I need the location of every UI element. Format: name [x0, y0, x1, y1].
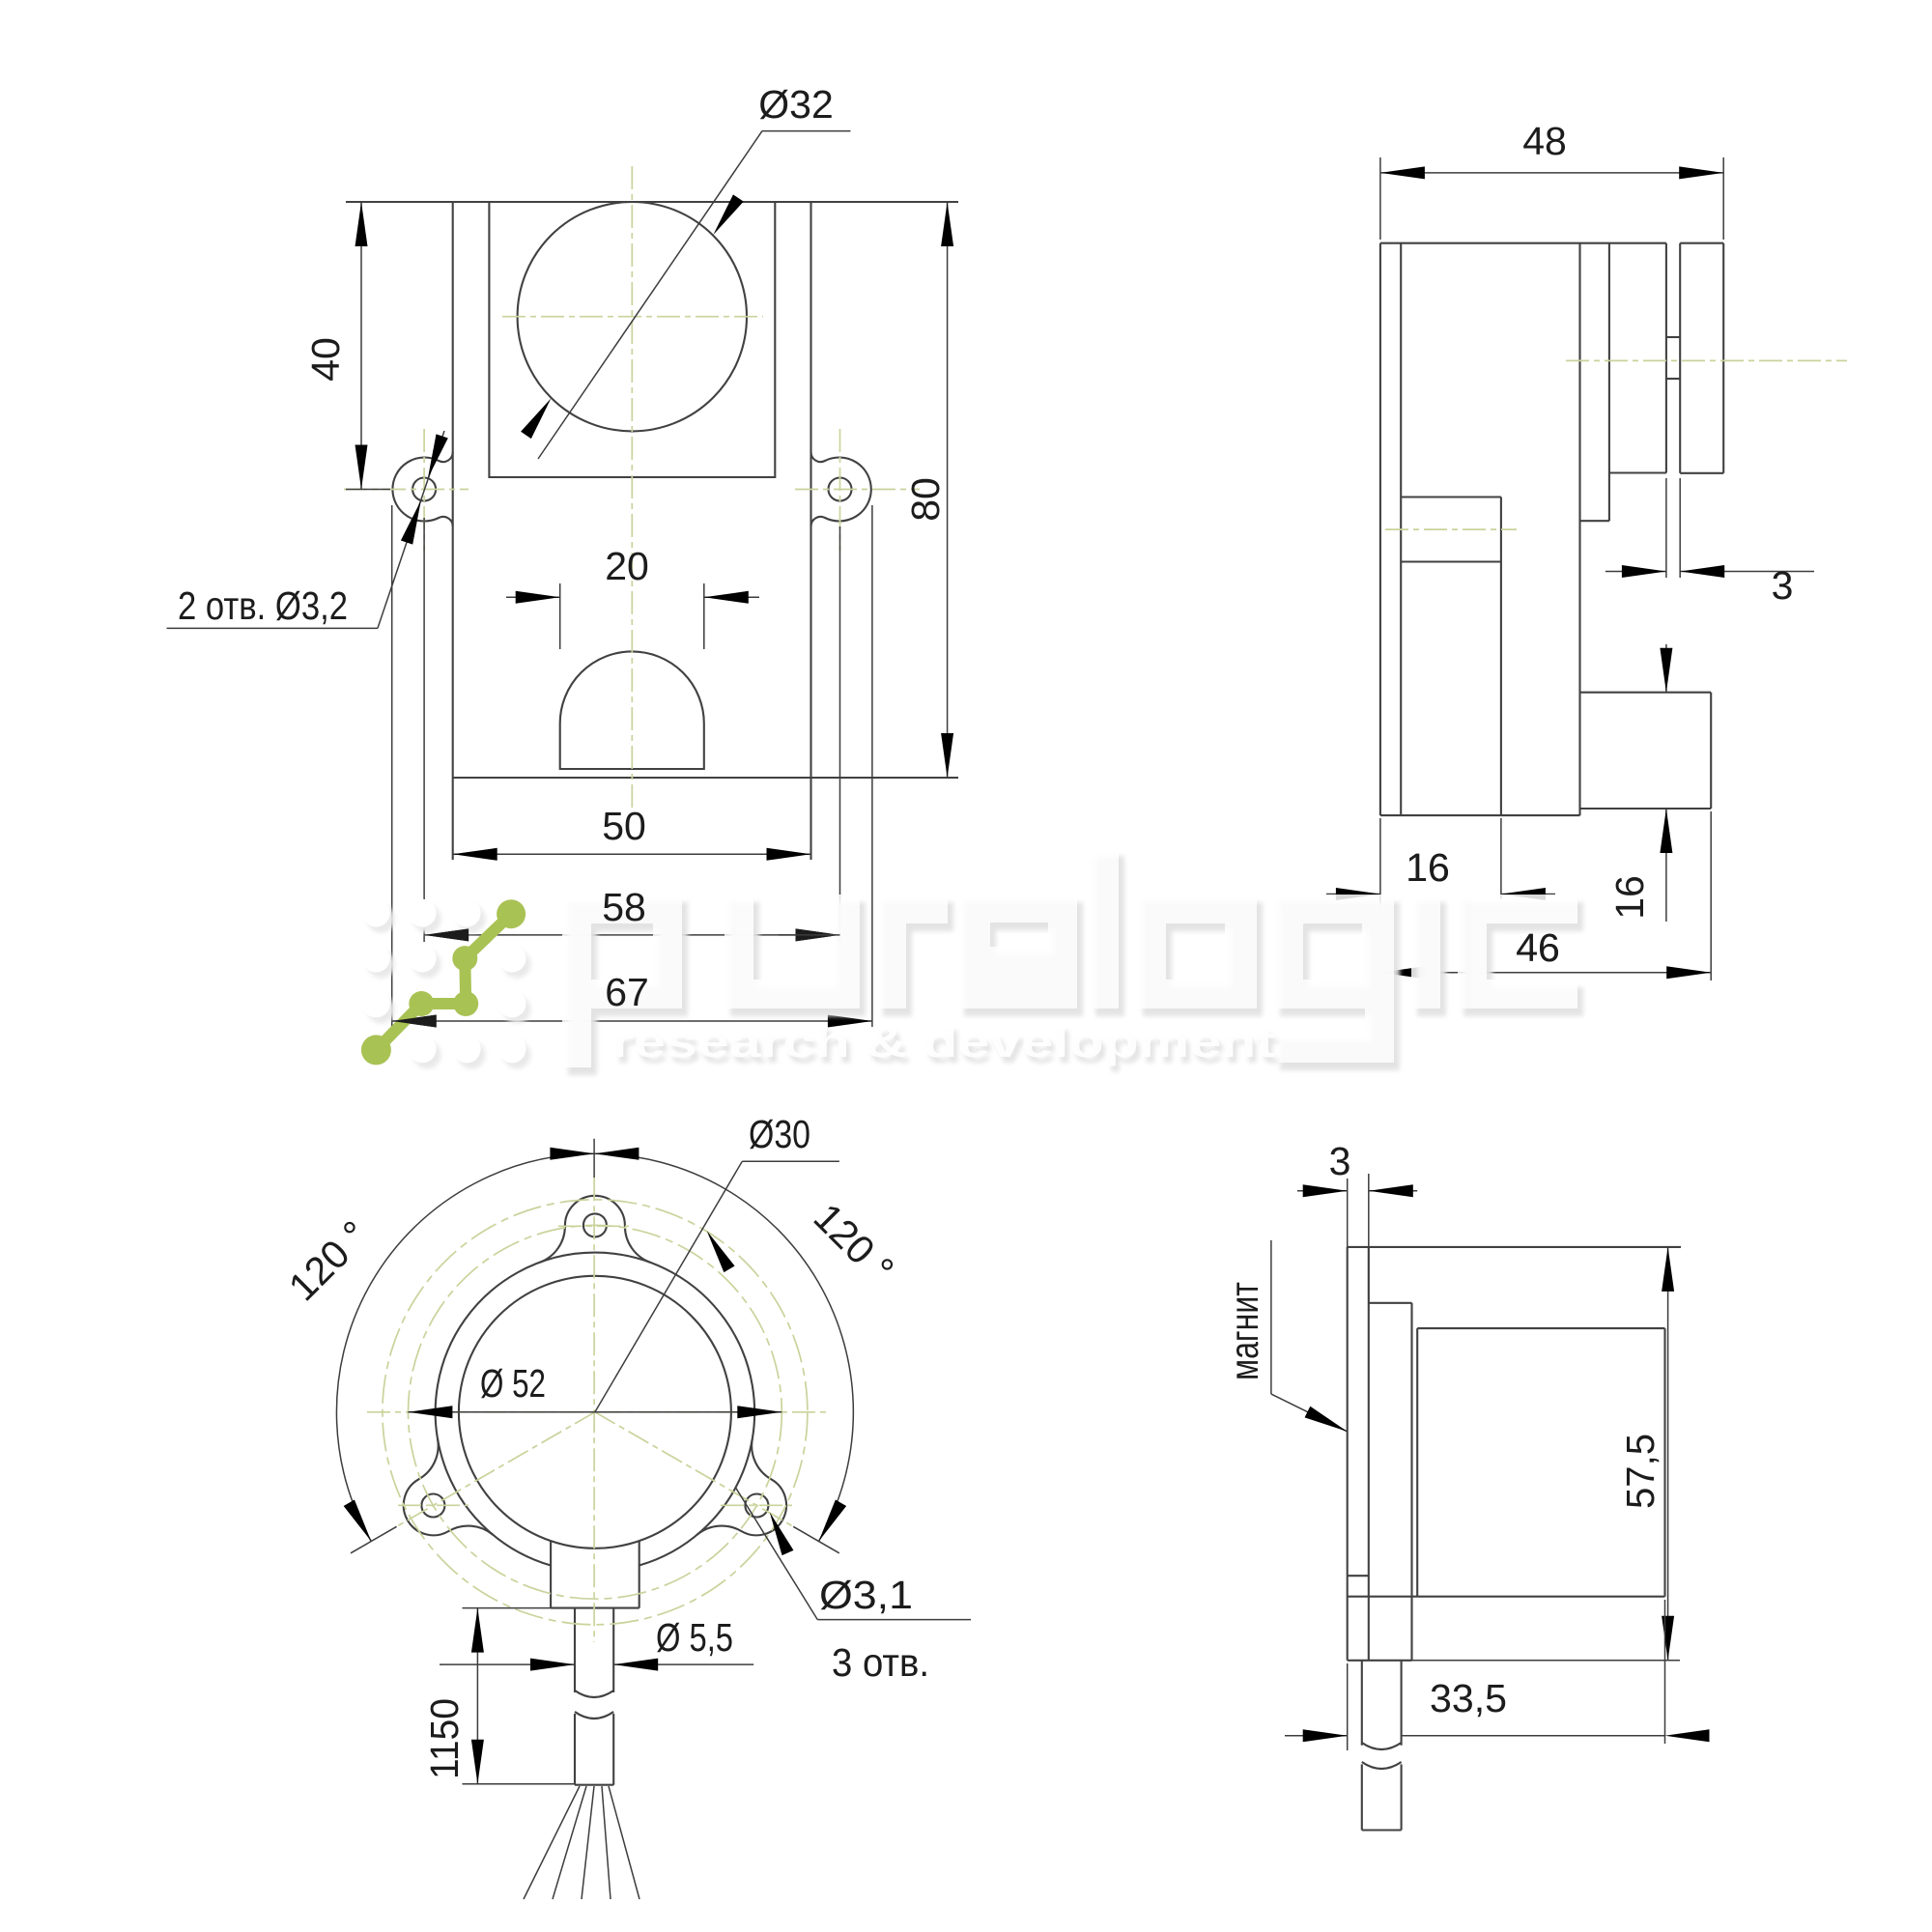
svg-text:67: 67 [605, 970, 649, 1014]
svg-text:2 отв. Ø3,2: 2 отв. Ø3,2 [178, 583, 348, 628]
svg-text:80: 80 [903, 477, 948, 522]
svg-text:16: 16 [1607, 875, 1652, 920]
svg-text:Ø32: Ø32 [758, 82, 834, 127]
svg-text:Ø3,1: Ø3,1 [819, 1573, 913, 1617]
svg-text:48: 48 [1522, 119, 1567, 163]
svg-text:1150: 1150 [422, 1698, 467, 1779]
svg-text:Ø 52: Ø 52 [480, 1361, 546, 1406]
svg-text:40: 40 [303, 337, 348, 382]
svg-text:магнит: магнит [1222, 1282, 1266, 1380]
svg-text:58: 58 [602, 885, 646, 929]
svg-text:20: 20 [605, 544, 649, 588]
svg-text:Ø30: Ø30 [749, 1112, 810, 1156]
svg-text:Ø 5,5: Ø 5,5 [656, 1615, 733, 1660]
svg-text:16: 16 [1406, 845, 1450, 890]
svg-text:3 отв.: 3 отв. [832, 1640, 929, 1685]
svg-text:3: 3 [1772, 563, 1794, 608]
svg-text:3: 3 [1329, 1139, 1351, 1183]
svg-text:33,5: 33,5 [1430, 1676, 1507, 1720]
svg-text:46: 46 [1516, 925, 1560, 970]
svg-text:research & development: research & development [611, 1017, 1275, 1066]
svg-text:50: 50 [602, 804, 646, 848]
svg-text:57,5: 57,5 [1618, 1434, 1662, 1509]
